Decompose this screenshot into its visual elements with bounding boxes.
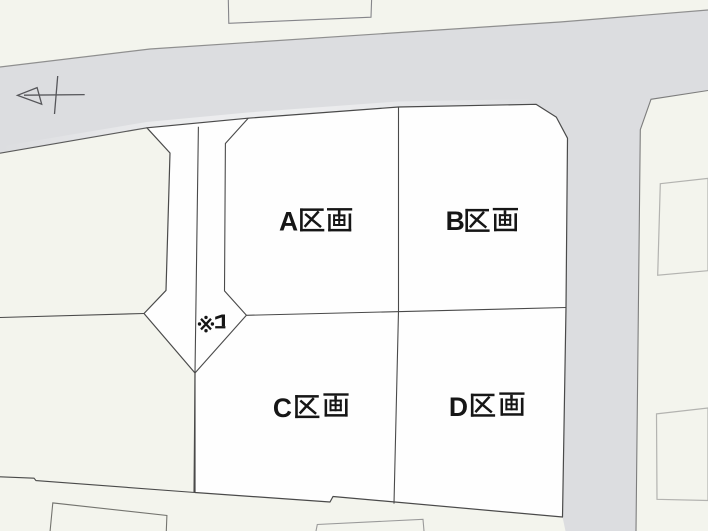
svg-text:C: C xyxy=(273,393,292,423)
svg-text:D: D xyxy=(449,392,468,422)
svg-text:A: A xyxy=(279,206,298,236)
svg-text:B: B xyxy=(446,206,465,236)
